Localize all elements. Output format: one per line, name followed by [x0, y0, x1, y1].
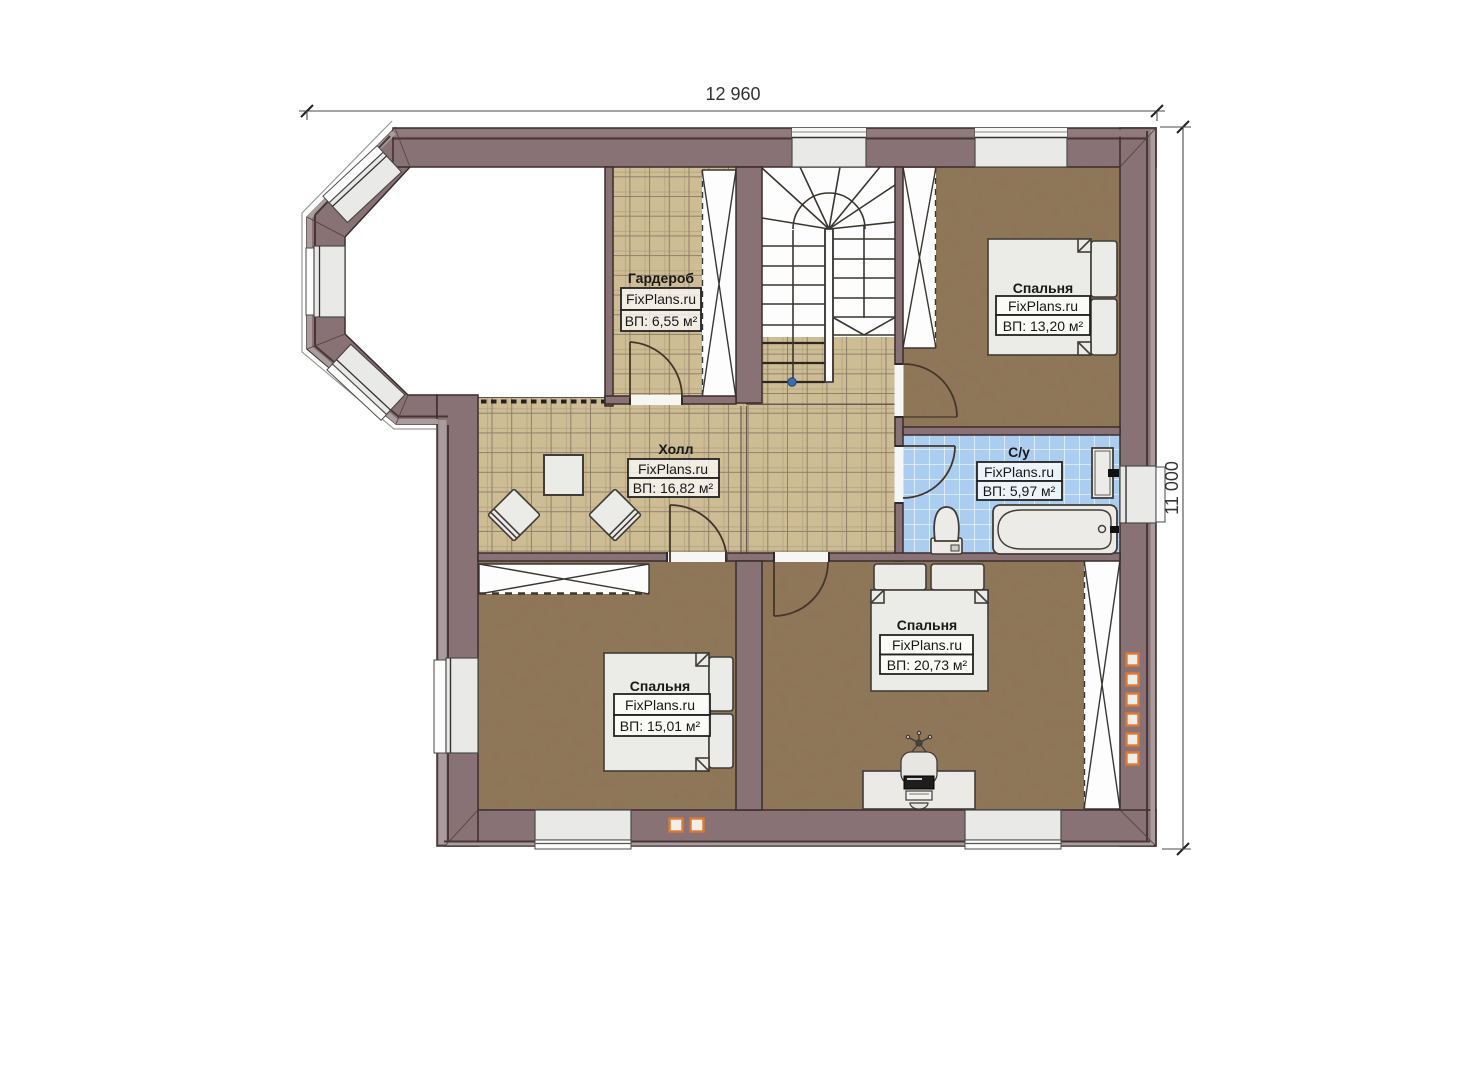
svg-text:ВП: 16,82 м²: ВП: 16,82 м²: [633, 480, 714, 496]
svg-text:FixPlans.ru: FixPlans.ru: [638, 461, 708, 477]
svg-text:FixPlans.ru: FixPlans.ru: [625, 697, 695, 713]
svg-text:FixPlans.ru: FixPlans.ru: [626, 291, 696, 307]
svg-text:ВП: 13,20 м²: ВП: 13,20 м²: [1003, 318, 1084, 334]
svg-text:Спальня: Спальня: [897, 617, 957, 633]
svg-text:ВП: 5,97 м²: ВП: 5,97 м²: [983, 483, 1056, 499]
svg-text:ВП: 15,01 м²: ВП: 15,01 м²: [620, 718, 701, 734]
svg-text:11 000: 11 000: [1162, 461, 1182, 515]
svg-text:FixPlans.ru: FixPlans.ru: [984, 464, 1054, 480]
svg-text:FixPlans.ru: FixPlans.ru: [892, 637, 962, 653]
svg-text:Спальня: Спальня: [630, 678, 690, 694]
svg-text:ВП: 6,55 м²: ВП: 6,55 м²: [625, 313, 698, 329]
svg-text:С/у: С/у: [1008, 444, 1030, 460]
svg-text:Гардероб: Гардероб: [628, 270, 695, 286]
svg-text:12 960: 12 960: [705, 84, 760, 104]
svg-text:Спальня: Спальня: [1013, 280, 1073, 296]
svg-text:Холл: Холл: [658, 441, 693, 457]
svg-text:ВП: 20,73 м²: ВП: 20,73 м²: [887, 657, 968, 673]
svg-text:FixPlans.ru: FixPlans.ru: [1008, 298, 1078, 314]
